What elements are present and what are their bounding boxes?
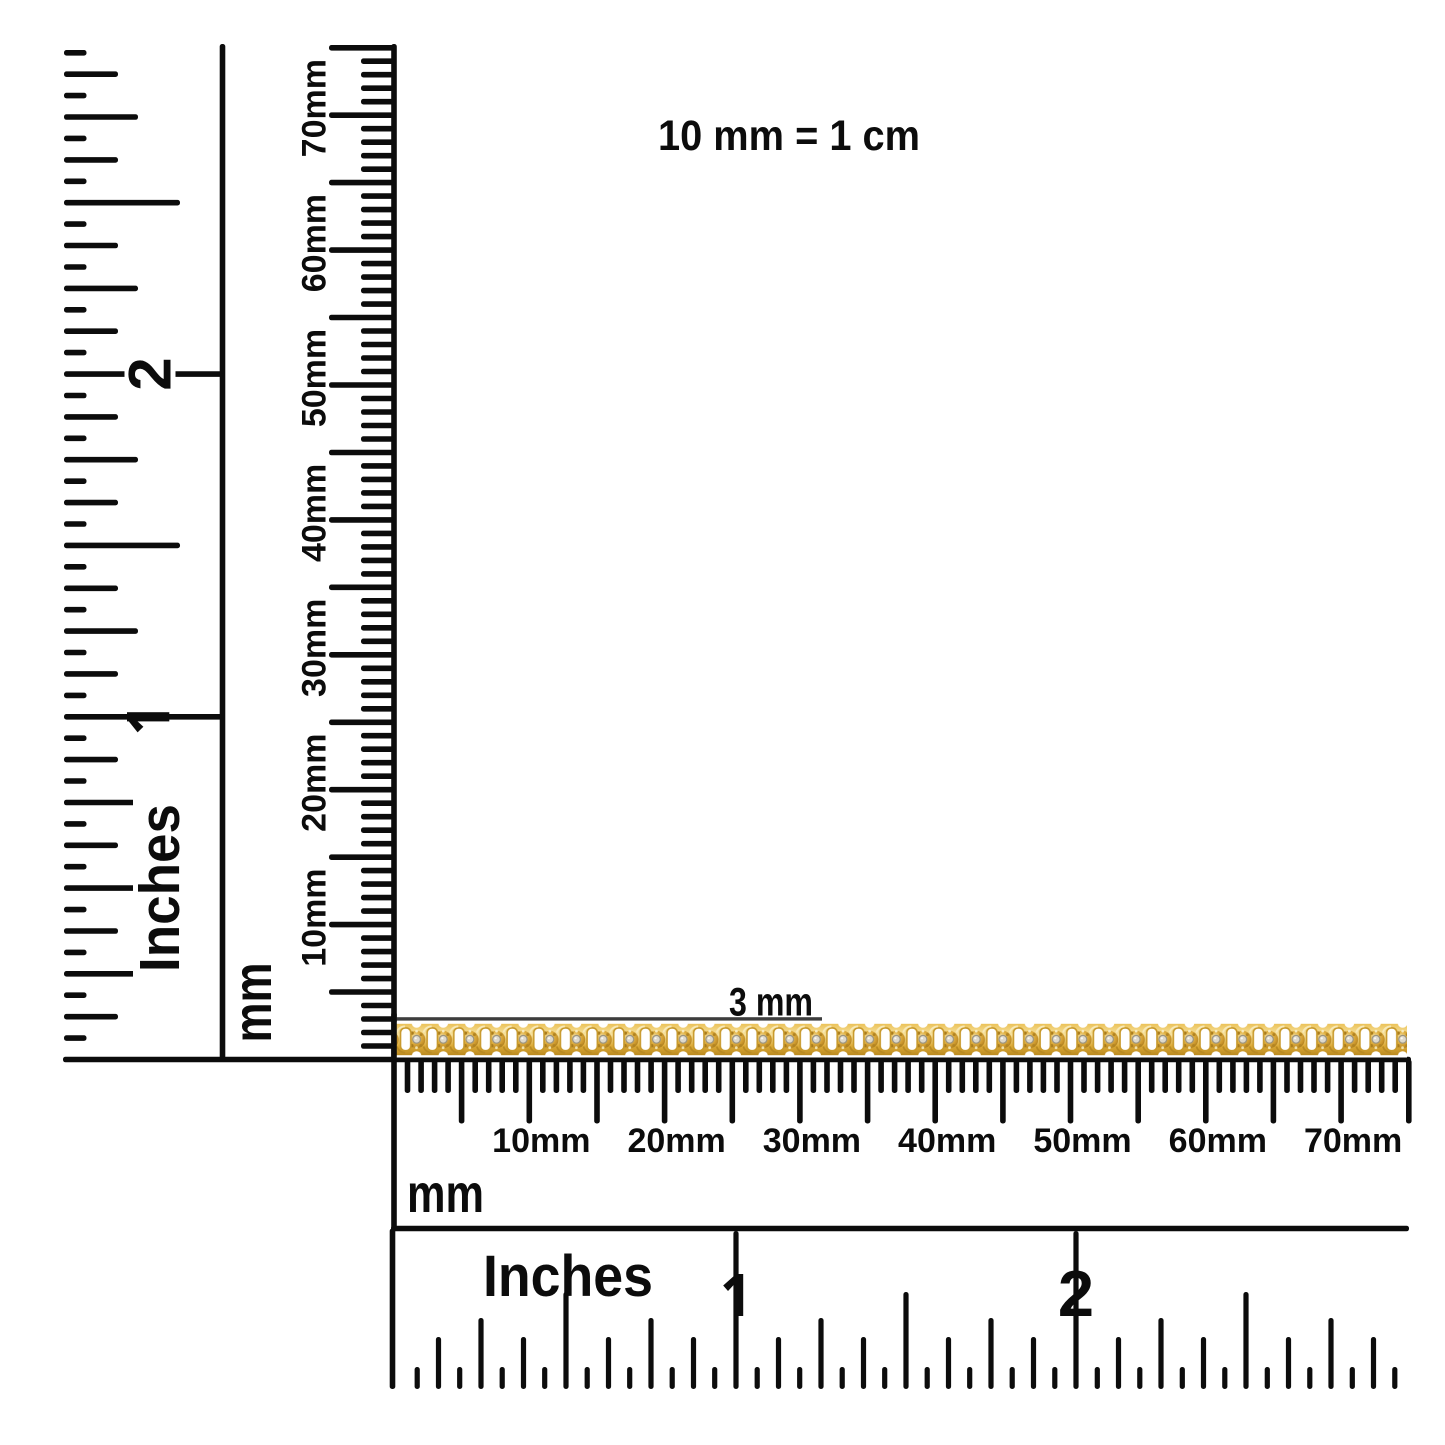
svg-text:2: 2 [1058, 1257, 1094, 1330]
svg-text:Inches: Inches [483, 1244, 653, 1309]
svg-text:40mm: 40mm [296, 464, 334, 562]
svg-text:50mm: 50mm [1033, 1122, 1131, 1160]
svg-text:70mm: 70mm [296, 59, 334, 157]
svg-text:Inches: Inches [128, 804, 192, 972]
svg-text:60mm: 60mm [1169, 1122, 1267, 1160]
svg-text:10mm: 10mm [296, 868, 334, 966]
svg-text:30mm: 30mm [763, 1122, 861, 1160]
svg-text:2: 2 [117, 357, 184, 390]
svg-text:mm: mm [223, 963, 283, 1043]
svg-text:50mm: 50mm [296, 329, 334, 427]
svg-text:3 mm: 3 mm [729, 981, 813, 1025]
svg-text:20mm: 20mm [296, 734, 334, 832]
svg-text:20mm: 20mm [627, 1122, 725, 1160]
svg-text:60mm: 60mm [296, 194, 334, 292]
svg-text:70mm: 70mm [1304, 1122, 1402, 1160]
svg-text:40mm: 40mm [898, 1122, 996, 1160]
svg-text:30mm: 30mm [296, 599, 334, 697]
svg-text:10mm: 10mm [492, 1122, 590, 1160]
svg-text:mm: mm [407, 1164, 484, 1224]
svg-text:10 mm = 1 cm: 10 mm = 1 cm [658, 112, 920, 160]
